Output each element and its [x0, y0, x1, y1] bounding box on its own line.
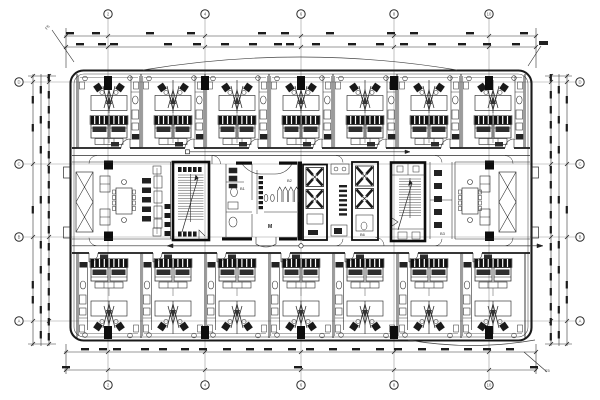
- svg-text:B1: B1: [240, 186, 246, 191]
- svg-text:10: 10: [487, 383, 492, 388]
- svg-text:B3: B3: [440, 231, 446, 236]
- svg-text:C: C: [17, 162, 20, 167]
- svg-text:B: B: [579, 235, 582, 240]
- svg-text:A: A: [18, 319, 21, 324]
- svg-text:B2: B2: [287, 178, 293, 183]
- svg-text:B: B: [18, 235, 21, 240]
- svg-text:10: 10: [487, 12, 492, 17]
- svg-text:D: D: [17, 80, 20, 85]
- svg-text:F5: F5: [545, 368, 550, 373]
- svg-text:C: C: [578, 162, 581, 167]
- svg-text:M: M: [268, 224, 272, 230]
- svg-text:B6: B6: [360, 232, 366, 237]
- svg-text:D: D: [578, 80, 581, 85]
- svg-text:A: A: [579, 319, 582, 324]
